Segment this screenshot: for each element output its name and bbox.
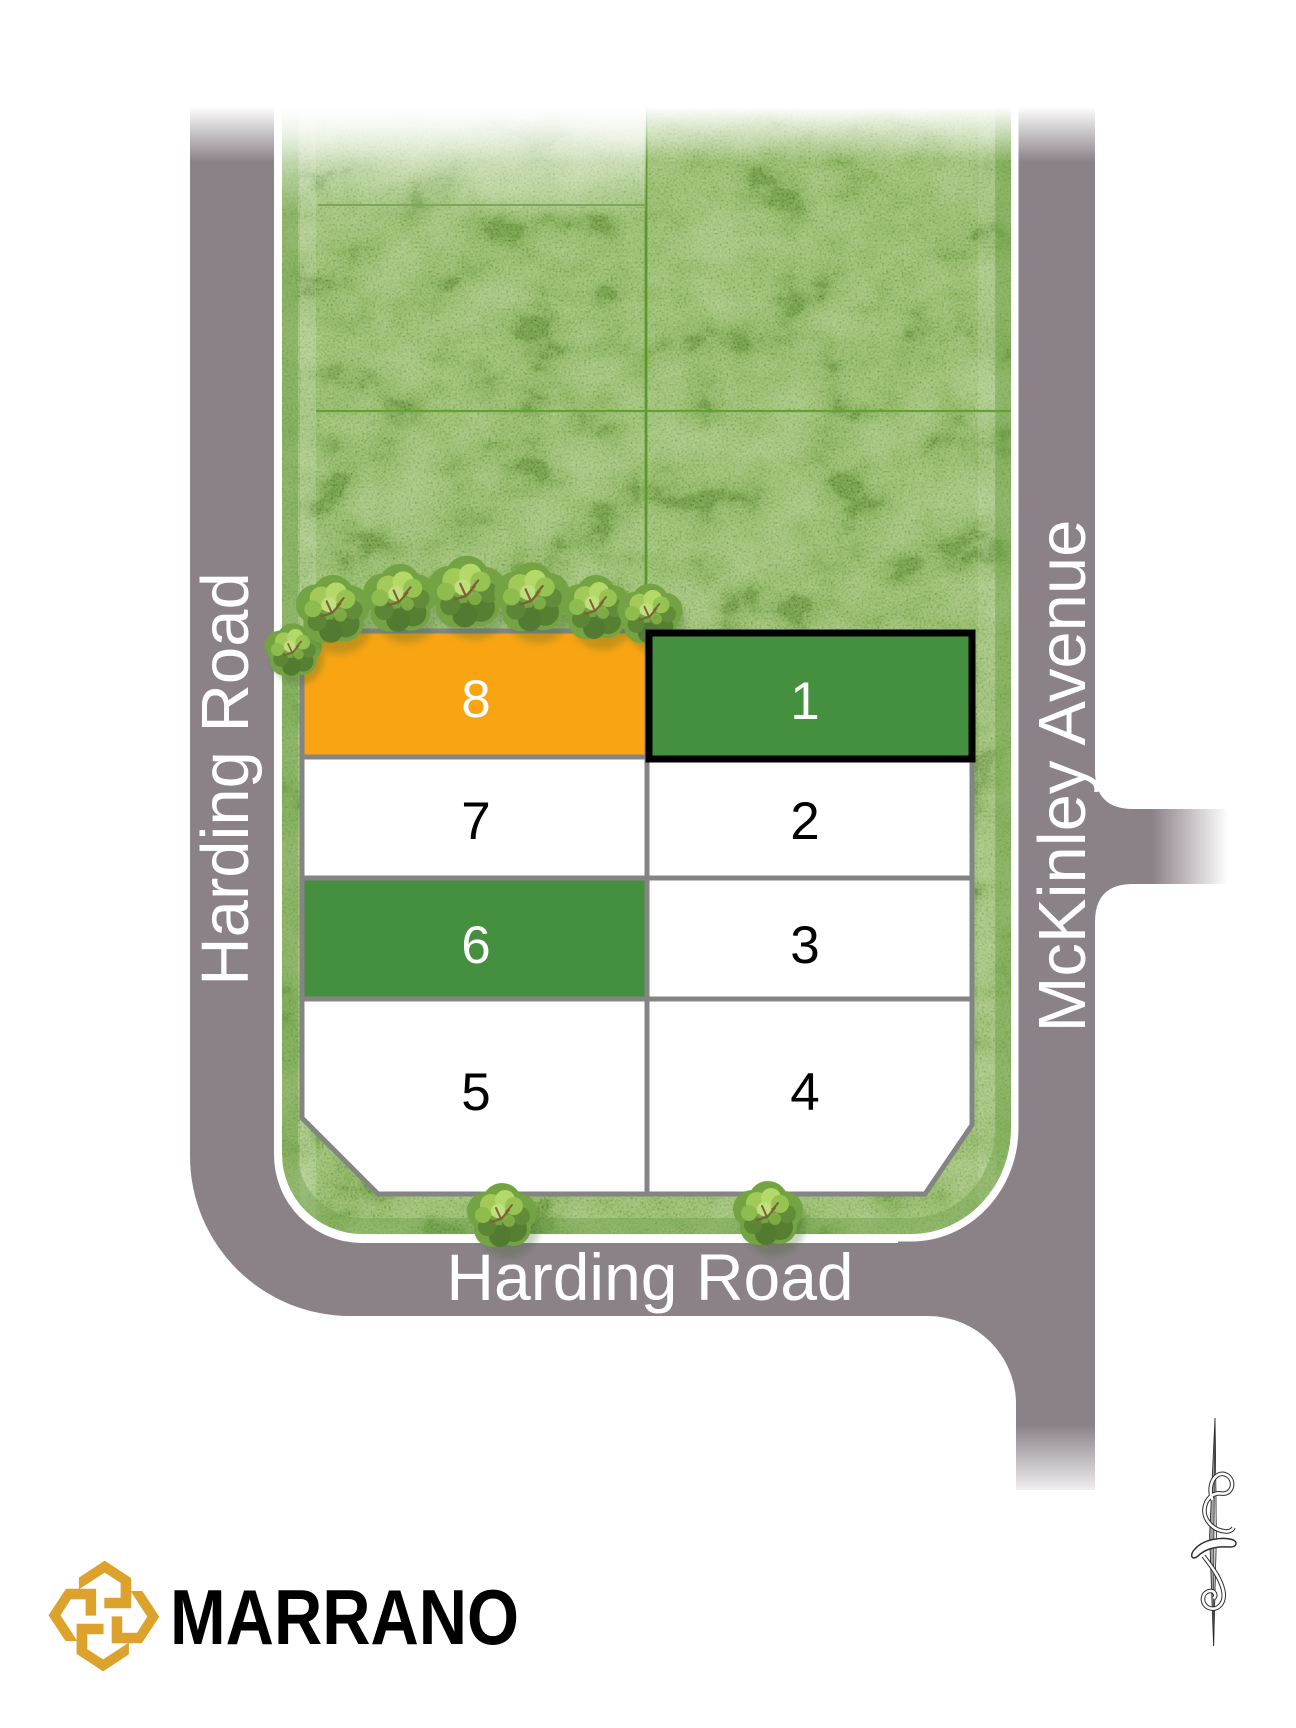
svg-text:4: 4 [790,1063,819,1122]
svg-text:1: 1 [790,672,819,731]
svg-text:8: 8 [461,670,490,729]
svg-text:Harding Road: Harding Road [446,1240,853,1314]
svg-text:6: 6 [461,916,490,975]
svg-text:7: 7 [461,792,490,851]
svg-text:5: 5 [461,1063,490,1122]
svg-text:Harding Road: Harding Road [188,572,263,985]
svg-text:3: 3 [790,916,819,975]
svg-text:MARRANO: MARRANO [170,1574,519,1661]
svg-text:McKinley Avenue: McKinley Avenue [1025,520,1100,1033]
svg-text:2: 2 [790,792,819,851]
